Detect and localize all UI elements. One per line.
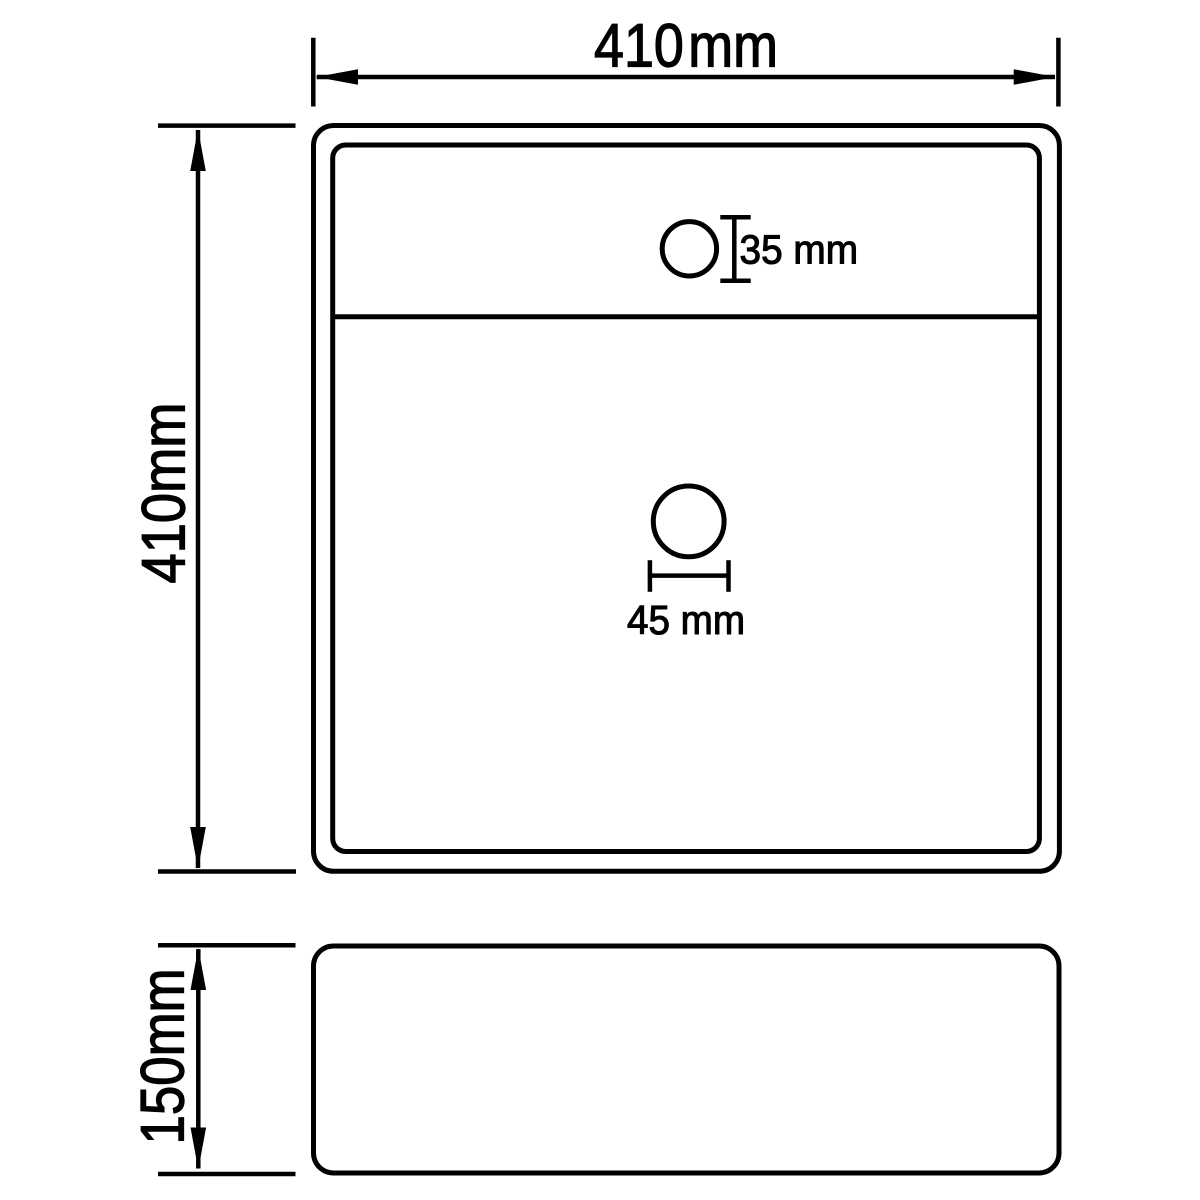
svg-text:45 mm: 45 mm: [627, 597, 745, 643]
svg-text:410mm: 410mm: [130, 403, 198, 584]
svg-text:35 mm: 35 mm: [740, 227, 859, 273]
svg-text:150mm: 150mm: [129, 969, 197, 1145]
svg-text:410 mm: 410 mm: [594, 11, 778, 79]
